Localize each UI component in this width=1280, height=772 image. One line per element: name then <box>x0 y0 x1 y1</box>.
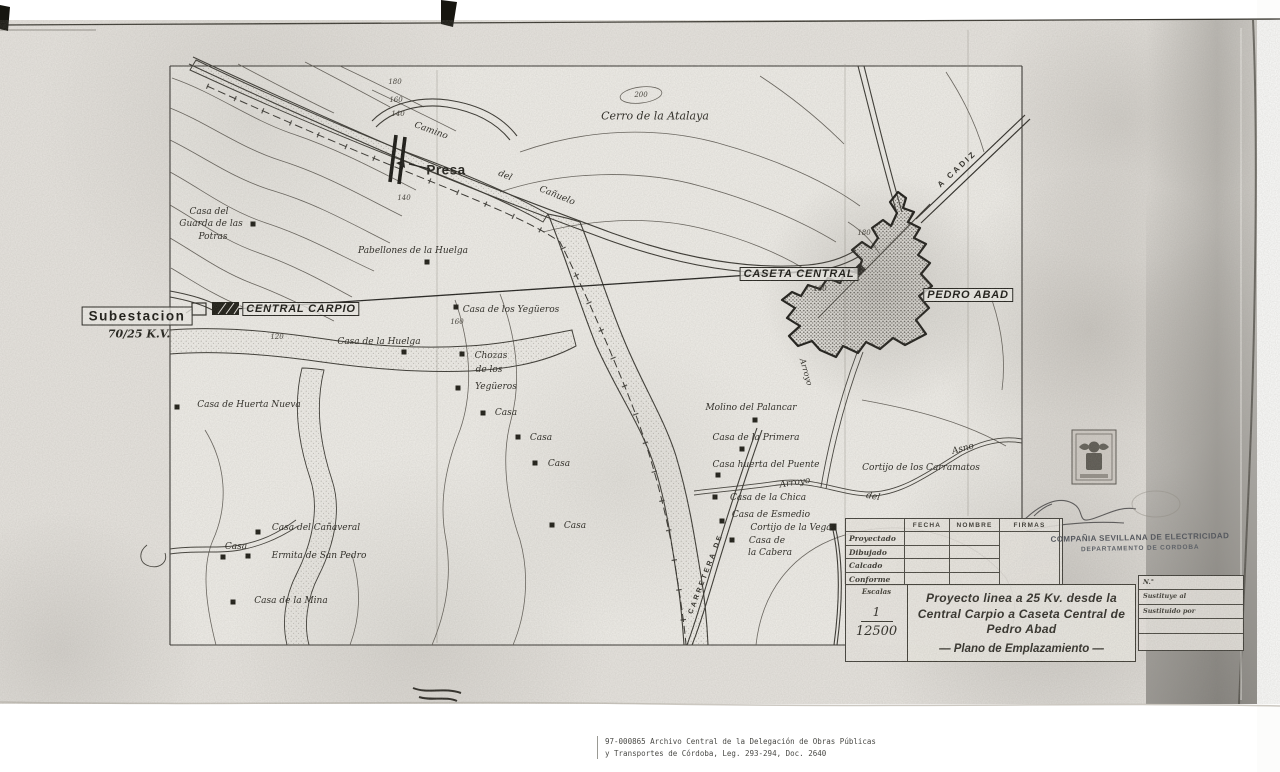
map-label: Casa <box>495 408 517 418</box>
scale-label: Escalas <box>846 587 907 596</box>
map-label: del <box>865 491 880 503</box>
map-label: Casa de la Chica <box>730 493 806 503</box>
map-label: Casa de la Mina <box>254 596 327 606</box>
map-label: 200 <box>634 91 647 99</box>
table-header-cell: FIRMAS <box>1000 519 1060 532</box>
table-empty-cell <box>950 559 1000 573</box>
map-label: 140 <box>391 110 404 118</box>
table-empty-cell <box>950 532 1000 546</box>
map-label: Pabellones de la Huelga <box>358 246 468 256</box>
map-label: Yegüeros <box>475 382 517 392</box>
building-marker <box>231 600 236 605</box>
info-row: N.° <box>1139 576 1243 590</box>
fraction-bar <box>861 621 893 622</box>
title-block-table: FECHANOMBREFIRMASProyectadoDibujadoCalca… <box>845 518 1063 586</box>
map-label: Casa de los Yegüeros <box>463 305 560 315</box>
scale-numerator: 1 <box>846 605 907 619</box>
building-marker <box>753 418 758 423</box>
drawing-title-box: Proyecto linea a 25 Kv. desde laCentral … <box>907 584 1136 662</box>
map-label: Molino del Palancar <box>705 403 796 413</box>
drawing-title-line: Pedro Abad <box>908 622 1135 638</box>
map-label: Cortijo de los Carramatos <box>862 463 980 473</box>
map-label: Potras <box>198 232 227 242</box>
building-marker <box>402 350 407 355</box>
building-marker <box>246 554 251 559</box>
scanned-map-page: Casa delGuarda de lasPotrasPabellones de… <box>0 0 1280 772</box>
map-label: Casa <box>548 459 570 469</box>
map-label: la Cabera <box>748 548 792 558</box>
building-marker <box>175 405 180 410</box>
map-label: 70/25 K.V. <box>108 328 170 341</box>
building-marker <box>516 435 521 440</box>
archive-reference: 97-000865 Archivo Central de la Delegaci… <box>597 736 876 759</box>
map-label: 180 <box>813 285 826 293</box>
map-label: Ermita de San Pedro <box>272 551 367 561</box>
map-label: Chozas <box>475 351 508 361</box>
map-label: 180 <box>857 229 870 237</box>
building-marker <box>730 538 735 543</box>
drawing-title-line: Central Carpio a Caseta Central de <box>908 607 1135 623</box>
map-label: Casa <box>564 521 586 531</box>
archive-reference-line1: 97-000865 Archivo Central de la Delegaci… <box>605 736 876 748</box>
table-row-label: Dibujado <box>846 546 905 560</box>
faint-stamp-circle <box>1132 491 1180 517</box>
scale-denominator: 12500 <box>846 624 907 639</box>
map-label: Casa de Huerta Nueva <box>197 400 301 410</box>
building-marker <box>454 305 459 310</box>
railway <box>916 115 1030 223</box>
map-label: 120 <box>270 333 283 341</box>
table-empty-cell <box>905 546 950 560</box>
map-label: Casa <box>530 433 552 443</box>
map-label: Casa <box>225 542 247 552</box>
map-label: Casa huerta del Puente <box>713 460 820 470</box>
table-header-cell: FECHA <box>905 519 950 532</box>
building-marker <box>456 386 461 391</box>
table-empty-cell <box>905 532 950 546</box>
table-empty-cell <box>905 559 950 573</box>
info-row <box>1139 634 1243 648</box>
map-label: Casa de <box>749 536 785 546</box>
scale-box: Escalas 1 12500 <box>845 584 908 662</box>
table-row-label: Proyectado <box>846 532 905 546</box>
boxed-label: PEDRO ABAD <box>923 288 1013 302</box>
revenue-stamp <box>1072 430 1116 484</box>
map-label: Casa de la Primera <box>713 433 800 443</box>
archive-reference-line2: y Transportes de Córdoba, Leg. 293-294, … <box>605 748 876 760</box>
revision-info-box: N.°Sustituye alSustituido por <box>1138 575 1244 651</box>
drawing-subtitle: — Plano de Emplazamiento — <box>908 643 1135 655</box>
building-marker <box>550 523 555 528</box>
map-label: Casa de la Huelga <box>337 337 420 347</box>
river-guadalquivir <box>170 60 708 645</box>
map-label: Casa de Esmedio <box>732 510 810 520</box>
building-marker <box>533 461 538 466</box>
table-row-label: Calcado <box>846 559 905 573</box>
table-header-cell <box>846 519 905 532</box>
info-row: Sustituye al <box>1139 590 1243 604</box>
building-marker <box>221 555 226 560</box>
map-label: Cerro de la Atalaya <box>601 110 709 123</box>
building-marker <box>713 495 718 500</box>
boxed-label: Subestacion <box>82 307 193 326</box>
map-label: Cortijo de la Vega <box>750 523 831 533</box>
info-row <box>1139 619 1243 633</box>
map-label: 160 <box>389 96 402 104</box>
building-marker <box>460 352 465 357</box>
boxed-label: CENTRAL CARPIO <box>242 302 359 316</box>
building-marker <box>740 447 745 452</box>
boxed-label: CASETA CENTRAL <box>740 267 859 281</box>
map-label: Casa del Cañaveral <box>272 523 360 533</box>
map-label: Presa <box>426 163 465 178</box>
table-header-cell: NOMBRE <box>950 519 1000 532</box>
map-label: 160 <box>450 318 463 326</box>
drawing-title: Proyecto linea a 25 Kv. desde laCentral … <box>908 591 1135 638</box>
building-marker <box>251 222 256 227</box>
building-marker <box>720 519 725 524</box>
building-marker <box>481 411 486 416</box>
map-label: 140 <box>397 194 410 202</box>
table-empty-cell <box>950 546 1000 560</box>
info-row: Sustituido por <box>1139 605 1243 619</box>
building-marker <box>256 530 261 535</box>
map-label: 180 <box>388 78 401 86</box>
building-marker <box>425 260 430 265</box>
drawing-title-line: Proyecto linea a 25 Kv. desde la <box>908 591 1135 607</box>
map-label: Casa del <box>189 207 228 217</box>
map-label: de los <box>476 365 503 375</box>
building-marker <box>716 473 721 478</box>
map-label: Guarda de las <box>179 219 242 229</box>
